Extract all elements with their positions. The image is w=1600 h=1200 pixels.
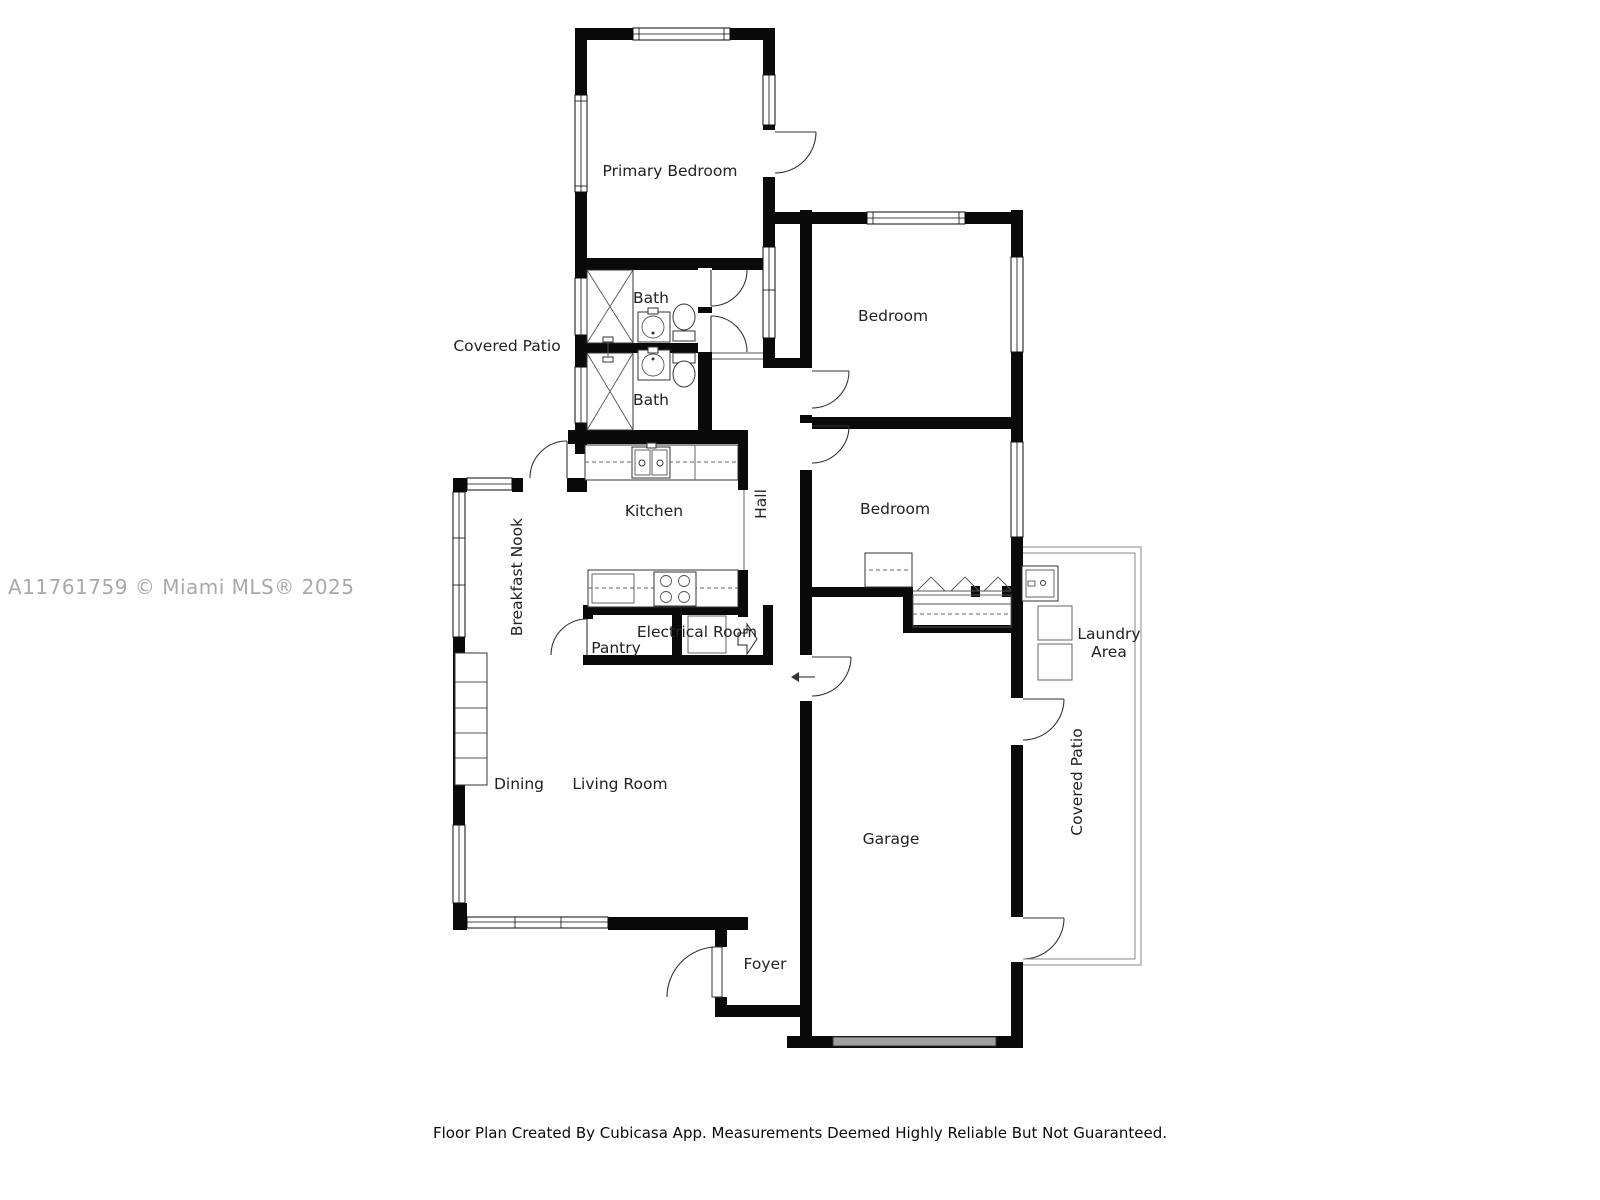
door [812, 371, 849, 408]
window [763, 75, 775, 125]
stove-icon [654, 572, 696, 606]
door [775, 132, 816, 173]
door [551, 619, 587, 655]
toilet-icon [673, 353, 695, 387]
sink-icon [638, 308, 670, 342]
door [530, 441, 567, 478]
floor-plan-drawing: Primary BedroomBathBathCovered PatioKitc… [0, 0, 1600, 1200]
walls [453, 28, 1023, 1048]
window [467, 917, 608, 928]
room-label-dining: Dining [494, 775, 544, 793]
room-label-kitchen: Kitchen [625, 502, 683, 520]
kitchen-counter [585, 443, 738, 480]
window [575, 95, 587, 192]
room-label-laundry-area-line2: Area [1091, 643, 1127, 661]
window [1011, 442, 1023, 537]
disclaimer-text: Floor Plan Created By Cubicasa App. Meas… [0, 1124, 1600, 1142]
room-label-primary-bedroom: Primary Bedroom [603, 162, 738, 180]
washer-icon [1022, 566, 1058, 601]
window [633, 28, 730, 40]
room-label-laundry-area-line1: Laundry [1077, 625, 1140, 643]
window [763, 247, 775, 338]
dresser-icon [865, 553, 912, 587]
sink-icon [638, 347, 670, 380]
room-label-electrical-room: Electrical Room [637, 623, 757, 641]
window [453, 825, 465, 903]
room-label-hall: Hall [752, 489, 770, 519]
window [453, 492, 465, 637]
floor-plan-page: A11761759 © Miami MLS® 2025 [0, 0, 1600, 1200]
room-label-bedroom-top: Bedroom [858, 307, 928, 325]
shelving-unit [455, 653, 487, 785]
door [711, 270, 747, 306]
window [467, 478, 512, 490]
door [1023, 918, 1064, 959]
room-label-covered-patio-right: Covered Patio [1068, 728, 1086, 835]
room-label-breakfast-nook: Breakfast Nook [508, 518, 526, 636]
closet-shelf [913, 595, 1011, 627]
front-door [667, 947, 722, 997]
room-label-living-room: Living Room [572, 775, 667, 793]
room-label-bedroom-middle: Bedroom [860, 500, 930, 518]
door [812, 426, 849, 463]
window [575, 367, 587, 423]
door [1023, 699, 1064, 740]
laundry-unit-icon [1038, 644, 1072, 680]
door [711, 316, 747, 352]
room-label-foyer: Foyer [744, 955, 788, 973]
laundry-unit-icon [1038, 606, 1072, 640]
room-label-pantry: Pantry [591, 639, 641, 657]
kitchen-sink-icon [632, 443, 670, 478]
window [1011, 257, 1023, 352]
room-label-garage: Garage [863, 830, 920, 848]
shower-icon [587, 353, 633, 430]
room-label-bath-top: Bath [633, 289, 669, 307]
toilet-icon [673, 304, 695, 341]
kitchen-island [588, 570, 738, 607]
closet-bifold-doors [913, 577, 1011, 591]
window [575, 278, 587, 335]
room-label-bath-bottom: Bath [633, 391, 669, 409]
shower-icon [587, 270, 633, 343]
garage-door [833, 1037, 996, 1046]
room-label-covered-patio-left: Covered Patio [453, 337, 560, 355]
window [867, 212, 965, 224]
